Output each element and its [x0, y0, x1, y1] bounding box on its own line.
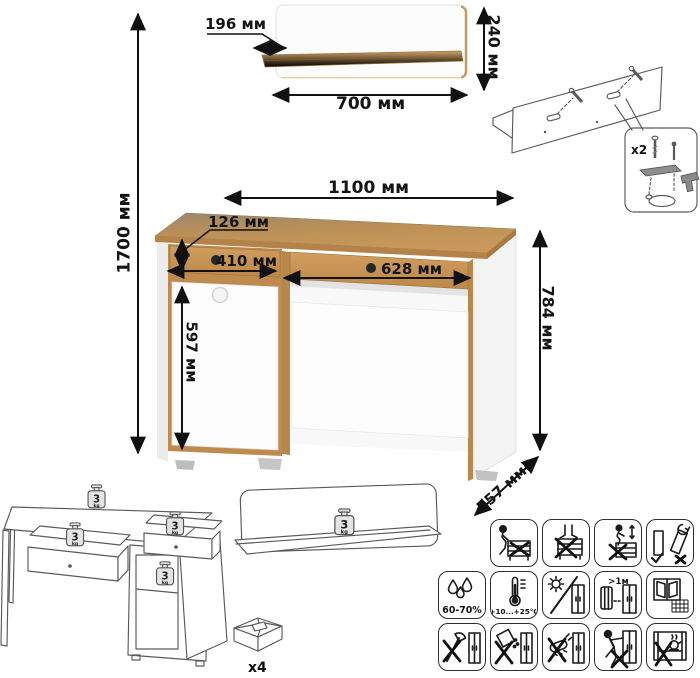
care-cell-no-abrasive: [542, 623, 590, 671]
desk-load-drawing: [0, 483, 232, 675]
right-drawer-knob: [366, 263, 376, 273]
shelf-mounting-drawing: x2: [485, 58, 700, 218]
ventilation-icon: [648, 573, 692, 617]
care-cell-no-spill: [490, 623, 538, 671]
heat-distance-icon: >1м: [596, 573, 640, 617]
humidity-icon: 60-70%: [440, 573, 484, 617]
desk-right-oak-edge: [468, 259, 473, 481]
humidity-label: 60-70%: [442, 605, 482, 616]
drill-icon: [681, 173, 699, 192]
shelf-back-panel: [276, 5, 466, 78]
desk-foot: [258, 458, 282, 470]
no-hot-items-icon: [648, 625, 692, 669]
care-cell-carry-upright: [646, 519, 694, 567]
dim-shelf-depth: 196 мм: [205, 14, 266, 34]
temperature-label: +10...+25°C: [492, 607, 536, 616]
care-icon-grid: 60-70% +10...+25°C: [438, 519, 694, 671]
drawing-shelf-board: [235, 526, 441, 554]
diagram-canvas: x2: [0, 0, 700, 678]
hardware-count-label: x2: [631, 143, 647, 157]
no-direct-sunlight-icon: [544, 573, 588, 617]
grid-blank-cell: [438, 519, 486, 567]
no-sharp-tools-icon: [440, 625, 484, 669]
care-cell-heat-distance: >1м: [594, 571, 642, 619]
dim-shelf-height: 240 мм: [484, 14, 504, 79]
dim-desk-height: 784 мм: [538, 285, 558, 350]
no-abrasive-icon: [544, 625, 588, 669]
care-cell-no-standing: [542, 519, 590, 567]
care-cell-no-sharp-tools: [438, 623, 486, 671]
mounting-bracket: [640, 165, 681, 176]
shelf-load-drawing: [233, 478, 451, 574]
care-cell-humidity: 60-70%: [438, 571, 486, 619]
no-standing-icon: [544, 521, 588, 565]
dim-door-height: 597 мм: [182, 321, 202, 382]
dim-total-height: 1700 мм: [115, 192, 135, 273]
care-cell-no-dragging: [594, 623, 642, 671]
no-dragging-icon: [596, 625, 640, 669]
foot-glide-drawing: x4: [222, 606, 294, 678]
cabinet-door-handle: [213, 288, 228, 303]
middle-divider: [282, 251, 290, 455]
care-cell-no-sitting: [490, 519, 538, 567]
no-climbing-icon: [596, 521, 640, 565]
desk-right-side-panel: [473, 235, 516, 478]
care-cell-no-climbing: [594, 519, 642, 567]
care-cell-no-hot-items: [646, 623, 694, 671]
dim-shelf-width: 700 мм: [336, 94, 405, 114]
drawing-open-drawer: [28, 526, 130, 581]
no-sitting-icon: [492, 521, 536, 565]
desk-foot: [175, 460, 195, 470]
care-cell-temperature: +10...+25°C: [490, 571, 538, 619]
desk-foot: [475, 470, 498, 481]
mounting-panel: [512, 67, 662, 153]
carry-upright-icon: [648, 521, 692, 565]
dim-right-drawer-width: 628 мм: [381, 259, 442, 279]
modesty-panel: [292, 302, 468, 438]
no-spill-liquids-icon: [492, 625, 536, 669]
temperature-icon: +10...+25°C: [492, 573, 536, 617]
dim-desk-width: 1100 мм: [328, 178, 409, 198]
drawing-open-drawer: [144, 515, 222, 559]
dim-drawer-height: 126 мм: [208, 212, 269, 232]
feet-count-label: x4: [248, 660, 267, 676]
care-cell-ventilation: [646, 571, 694, 619]
dim-left-drawer-width: 410 мм: [216, 251, 277, 271]
desk-left-side-panel: [157, 242, 168, 462]
care-cell-no-sunlight: [542, 571, 590, 619]
